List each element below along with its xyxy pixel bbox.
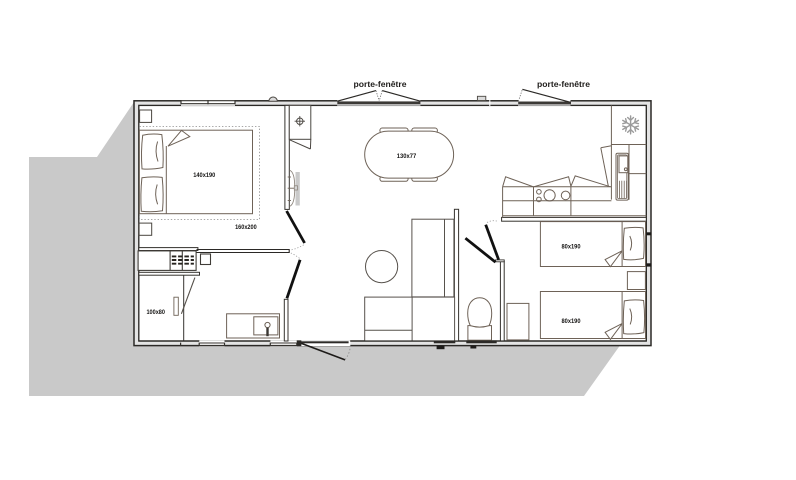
- svg-text:porte-fenêtre: porte-fenêtre: [353, 79, 406, 89]
- svg-text:160x200: 160x200: [235, 224, 257, 231]
- svg-text:100x80: 100x80: [146, 309, 165, 316]
- svg-text:porte-fenêtre: porte-fenêtre: [537, 79, 590, 89]
- svg-text:130x77: 130x77: [397, 153, 417, 160]
- svg-text:80x190: 80x190: [562, 318, 581, 325]
- svg-text:140x190: 140x190: [193, 172, 215, 179]
- svg-text:80x190: 80x190: [562, 244, 581, 251]
